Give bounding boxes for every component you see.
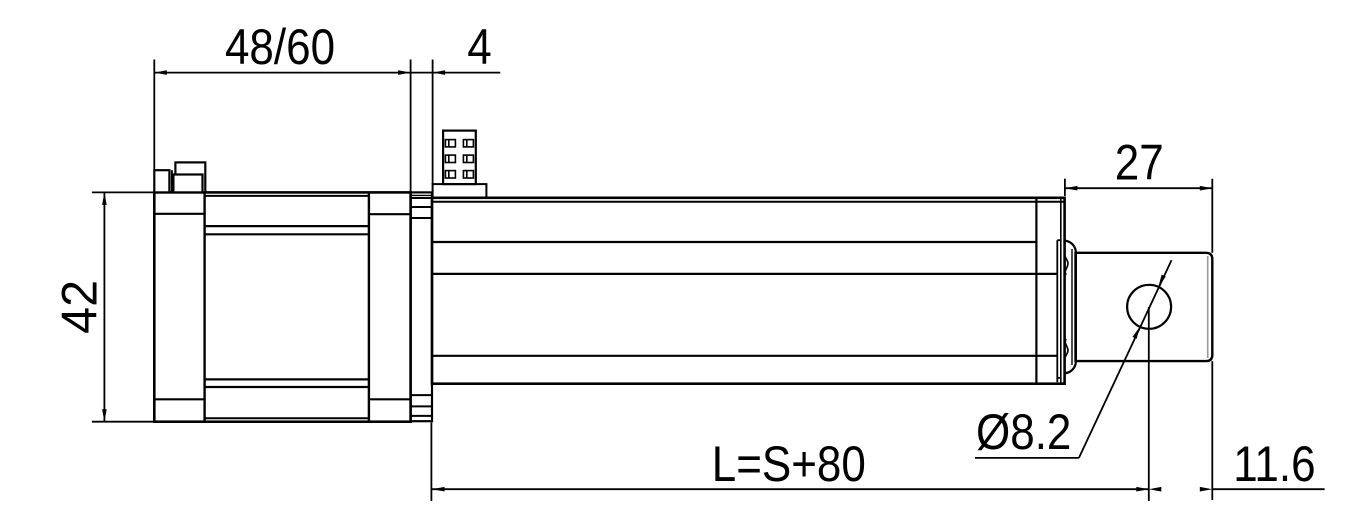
svg-text:Ø8.2: Ø8.2 <box>976 403 1071 459</box>
svg-text:4: 4 <box>467 18 491 74</box>
svg-text:42: 42 <box>52 280 108 334</box>
svg-text:L=S+80: L=S+80 <box>712 436 866 492</box>
svg-text:27: 27 <box>1115 134 1164 190</box>
svg-text:48/60: 48/60 <box>225 18 335 74</box>
svg-text:11.6: 11.6 <box>1233 436 1315 492</box>
